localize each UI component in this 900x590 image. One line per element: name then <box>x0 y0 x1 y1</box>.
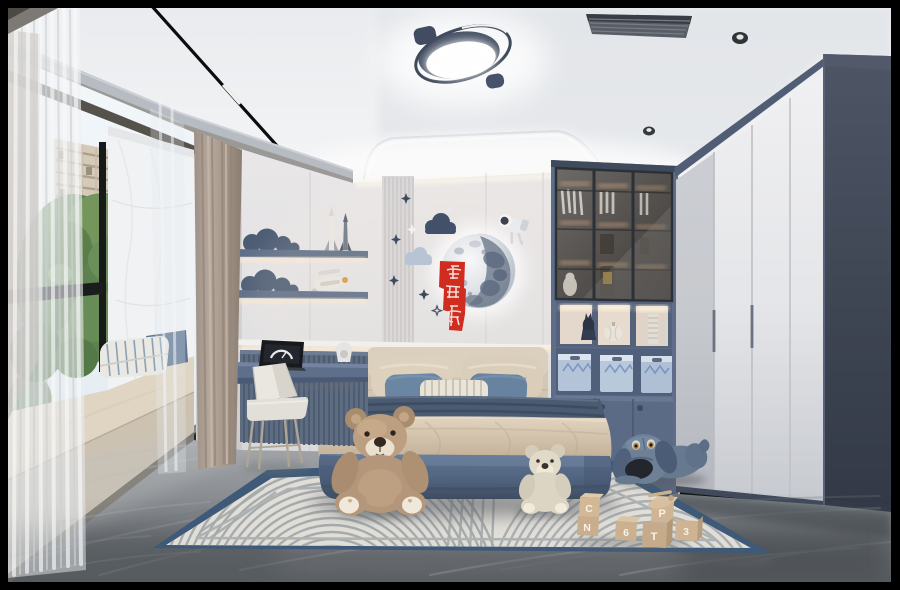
svg-text:T: T <box>651 531 658 543</box>
svg-text:C: C <box>585 503 593 515</box>
svg-text:N: N <box>583 522 591 534</box>
svg-text:3: 3 <box>683 526 689 538</box>
svg-text:P: P <box>658 508 665 520</box>
svg-text:6: 6 <box>623 527 629 539</box>
